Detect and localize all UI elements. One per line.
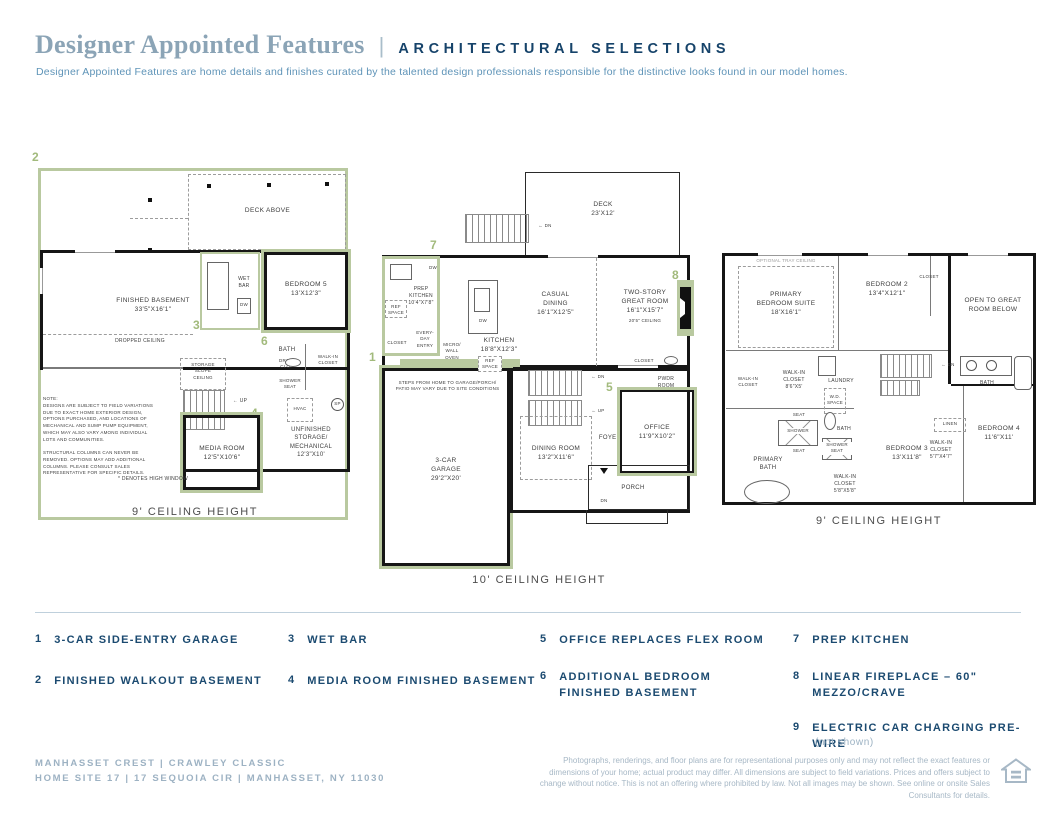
- window-gap: [548, 255, 598, 258]
- brochure-page: Designer Appointed Features | ARCHITECTU…: [0, 0, 1055, 815]
- deck-label: DECK 23'X12': [563, 200, 643, 218]
- partition: [726, 350, 950, 351]
- window-gap: [618, 365, 658, 368]
- island-sink: [474, 288, 490, 312]
- deck-above-label: DECK ABOVE: [215, 206, 320, 215]
- sump-pump-label: SP: [334, 401, 340, 407]
- feature-number: 5: [540, 633, 547, 649]
- feature-item-1: 1 3-CAR SIDE-ENTRY GARAGE: [35, 633, 274, 649]
- steps-note: STEPS FROM HOME TO GARAGE/PORCH/ PATIO M…: [390, 380, 505, 393]
- feature-number: 7: [793, 633, 800, 649]
- sink-fixture: [285, 358, 301, 367]
- feature-item-5: 5 OFFICE REPLACES FLEX ROOM: [540, 633, 774, 649]
- laundry-label: LAUNDRY: [818, 378, 864, 385]
- feature-number: 1: [35, 633, 42, 649]
- feature-label: MEDIA ROOM FINISHED BASEMENT: [307, 674, 537, 690]
- porch-steps: [586, 510, 668, 524]
- window-gap: [968, 253, 1008, 256]
- porch-dn-label: DN: [594, 498, 614, 504]
- high-window-note: * DENOTES HIGH WINDOW: [83, 476, 223, 483]
- seat-label: SEAT: [784, 448, 814, 454]
- feature-item-4: 4 MEDIA ROOM FINISHED BASEMENT: [288, 674, 537, 690]
- feature-label: LINEAR FIREPLACE – 60" MEZZO/CRAVE: [812, 670, 992, 702]
- basement-ceiling-height: 9' CEILING HEIGHT: [35, 505, 355, 520]
- wet-bar-label: WET BAR: [228, 276, 260, 290]
- prep-ref-label: REF SPACE: [385, 304, 407, 317]
- dropped-ceiling-line: [43, 334, 193, 335]
- dishwasher-label: DW: [237, 302, 251, 308]
- window-gap: [40, 268, 43, 294]
- partition: [930, 256, 931, 316]
- footer-site: HOME SITE 17 | 17 SEQUOIA CIR | MANHASSE…: [35, 773, 385, 784]
- bath-tub: [1014, 356, 1032, 390]
- foyer-closet-label: CLOSET: [630, 358, 658, 364]
- walk-in-closet-label: WALK-IN CLOSET: [309, 354, 347, 367]
- hall-bath-label: BATH: [970, 380, 1004, 387]
- dropped-ceiling-label: DROPPED CEILING: [80, 338, 200, 345]
- feature-number: 8: [793, 670, 800, 702]
- ref-space-label: REF SPACE: [478, 358, 502, 371]
- page-tagline: ARCHITECTURAL SELECTIONS: [398, 41, 730, 57]
- bedroom5-label: BEDROOM 5 13'X12'3": [267, 280, 345, 298]
- feature-item-3: 3 WET BAR: [288, 633, 527, 649]
- basement-note: NOTE: DESIGNS ARE SUBJECT TO FIELD VARIA…: [43, 396, 183, 477]
- bedroom4-label: BEDROOM 4 11'6"X11': [966, 424, 1032, 442]
- room-divider-dashed: [596, 258, 597, 366]
- footer-disclaimer: Photographs, renderings, and floor plans…: [532, 755, 990, 801]
- shower-seat-label: SHOWER SEAT: [273, 378, 307, 391]
- casual-dining-label: CASUAL DINING 16'1"X12'5": [508, 290, 603, 317]
- wet-bar-counter: [207, 262, 229, 310]
- plan-marker-2: 2: [32, 150, 39, 164]
- feature-number: 9: [793, 721, 800, 753]
- walk-in-closet-small-label: WALK-IN CLOSET: [730, 376, 766, 389]
- hvac-label: HVAC: [287, 406, 313, 412]
- deck-post-dot: [207, 184, 211, 188]
- vanity-sink: [986, 360, 997, 371]
- primary-suite-label: PRIMARY BEDROOM SUITE 18'X16'1": [740, 290, 832, 317]
- dining-room-label: DINING ROOM 13'2"X11'6": [516, 444, 596, 462]
- unfinished-storage-label: UNFINISHED STORAGE/ MECHANICAL 12'3"X10': [275, 426, 347, 460]
- stairs-up-label: ← UP: [584, 408, 612, 414]
- sump-pump-circle: SP: [331, 398, 344, 411]
- garage-label: 3-CAR GARAGE 29'2"X20': [398, 456, 494, 483]
- bath-label: BATH: [828, 426, 860, 433]
- page-title: Designer Appointed Features: [35, 30, 365, 60]
- storage-slope-label: STORAGE SLOPE CEILING: [183, 362, 223, 381]
- walk-in-closet-86-label: WALK-IN CLOSET 8'6"X5': [772, 370, 816, 391]
- feature-label: 3-CAR SIDE-ENTRY GARAGE: [54, 633, 274, 649]
- plan-marker-6: 6: [261, 334, 268, 348]
- stairs-dn-label: ← DN: [934, 362, 962, 368]
- feature-number: 4: [288, 674, 295, 690]
- feature-item-8: 8 LINEAR FIREPLACE – 60" MEZZO/CRAVE: [793, 670, 992, 702]
- second-floor-ceiling-height: 9' CEILING HEIGHT: [718, 514, 1040, 529]
- plan-marker-3: 3: [193, 318, 200, 332]
- feature-label: WET BAR: [307, 633, 527, 649]
- pwdr-sink: [664, 356, 678, 365]
- linen-label: LINEN: [934, 421, 966, 427]
- feature-label: PREP KITCHEN: [812, 633, 1022, 649]
- walk-in-closet-58-label: WALK-IN CLOSET 5'8"X5'8": [820, 474, 870, 495]
- kitchen-counter-highlight: [400, 359, 520, 367]
- feature-label: FINISHED WALKOUT BASEMENT: [54, 674, 274, 690]
- window-gap: [75, 250, 115, 253]
- feature-label: ADDITIONAL BEDROOM FINISHED BASEMENT: [559, 670, 774, 702]
- laundry-sink: [818, 356, 836, 376]
- primary-bath-label: PRIMARY BATH: [740, 456, 796, 473]
- equal-housing-icon: [1001, 757, 1031, 792]
- stairs-up-label: ← UP: [227, 398, 253, 405]
- floor-plan-basement: 2 DECK ABOVE FINISHED BASEMENT 33'5"X16'…: [35, 158, 355, 526]
- entry-closet-label: CLOSET: [384, 340, 410, 346]
- stairs-down: [880, 354, 932, 378]
- deck-stairs: [465, 214, 529, 243]
- office-label: OFFICE 11'9"X10'2": [624, 423, 690, 441]
- walkout-edge: [43, 367, 183, 369]
- bedroom2-label: BEDROOM 2 13'4"X12'1": [846, 280, 928, 298]
- partition: [838, 256, 839, 350]
- floor-plan-second: OPTIONAL TRAY CEILING PRIMARY BEDROOM SU…: [718, 248, 1040, 533]
- feature-item-7: 7 PREP KITCHEN: [793, 633, 1022, 649]
- walk-in-closet-57-label: WALK-IN CLOSET 5'7"X4'7": [918, 440, 964, 461]
- feature-number: 3: [288, 633, 295, 649]
- window-gap: [868, 253, 908, 256]
- window-gap: [758, 253, 802, 256]
- deck-post-dot: [267, 183, 271, 187]
- page-header: Designer Appointed Features | ARCHITECTU…: [35, 30, 730, 60]
- porch-label: PORCH: [600, 484, 666, 492]
- bedroom2-closet-label: CLOSET: [914, 274, 944, 280]
- feature-item-6: 6 ADDITIONAL BEDROOM FINISHED BASEMENT: [540, 670, 774, 702]
- kitchen-label: KITCHEN 18'8"X12'3": [463, 336, 535, 354]
- feature-number: 6: [540, 670, 547, 702]
- optional-tray-label: OPTIONAL TRAY CEILING: [740, 258, 832, 264]
- seat-label: SEAT: [784, 412, 814, 418]
- first-floor-ceiling-height: 10' CEILING HEIGHT: [378, 573, 700, 588]
- feature-number: 2: [35, 674, 42, 690]
- primary-tub: [744, 480, 790, 504]
- stairs-landing: [880, 380, 920, 396]
- shower-seat-label: SHOWER SEAT: [822, 442, 852, 455]
- pwdr-room-label: PWDR ROOM: [646, 376, 686, 390]
- floor-plan-first: DECK 23'X12' ← DN 7 PREP KITCHEN 10'4"X7…: [378, 168, 700, 593]
- feature-9-note: (not shown): [815, 737, 874, 748]
- vanity-sink: [966, 360, 977, 371]
- page-description: Designer Appointed Features are home det…: [36, 66, 848, 78]
- entry-door-mark: [600, 468, 608, 474]
- feature-item-2: 2 FINISHED WALKOUT BASEMENT: [35, 674, 274, 690]
- deck-dn-label: ← DN: [532, 223, 558, 229]
- footer-community: MANHASSET CREST | CRAWLEY CLASSIC: [35, 758, 286, 769]
- prep-sink: [390, 264, 412, 280]
- open-to-great-label: OPEN TO GREAT ROOM BELOW: [954, 296, 1032, 314]
- plan-marker-5: 5: [606, 380, 613, 394]
- deck-post-dot: [325, 182, 329, 186]
- shower-label: SHOWER: [782, 428, 814, 434]
- island-dw-label: DW: [476, 318, 490, 324]
- wd-space-label: W.D. SPACE: [824, 394, 846, 407]
- bath-label: BATH: [269, 346, 305, 354]
- features-divider: [35, 612, 1021, 613]
- plan-marker-1: 1: [369, 350, 376, 364]
- media-room-label: MEDIA ROOM 12'5"X10'6": [187, 444, 257, 462]
- title-divider: |: [379, 33, 385, 59]
- deck-post-dot: [148, 198, 152, 202]
- stairs-down: [528, 370, 582, 396]
- prep-dw-label: DW: [425, 265, 441, 271]
- deck-dashed-line: [130, 218, 188, 219]
- feature-label: OFFICE REPLACES FLEX ROOM: [559, 633, 774, 649]
- plan-marker-7: 7: [430, 238, 437, 252]
